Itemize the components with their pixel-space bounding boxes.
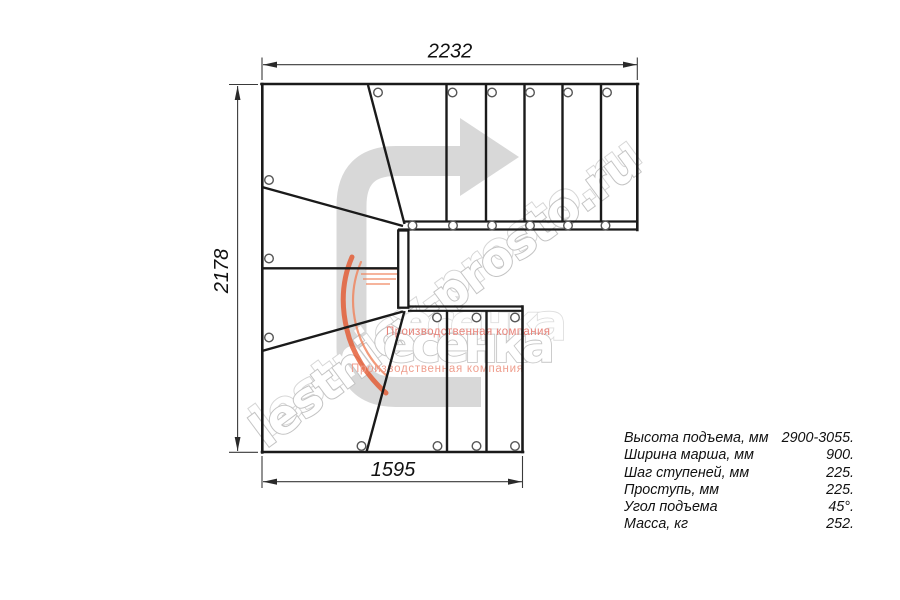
spec-label: Ширина марша, мм [624,447,754,464]
spec-row-flight-width: Ширина марша, мм 900. [624,447,854,464]
spec-label: Проступь, мм [624,482,719,499]
spec-value: 900. [826,447,854,464]
spec-label: Угол подъема [624,499,718,516]
spec-row-mass: Масса, кг 252. [624,516,854,533]
spec-value: 252. [826,516,854,533]
dimension-top-label: 2232 [427,41,473,63]
spec-label: Масса, кг [624,516,688,533]
dimension-left-label: 2178 [211,249,233,295]
spec-row-angle: Угол подъема 45°. [624,499,854,516]
spec-label: Высота подъема, мм [624,430,769,447]
spec-row-height: Высота подъема, мм 2900-3055. [624,430,854,447]
spec-value: 45°. [828,499,854,516]
dimension-bottom-label: 1595 [371,459,416,481]
spec-value: 225. [826,465,854,482]
spec-row-tread: Проступь, мм 225. [624,482,854,499]
spec-row-step-pitch: Шаг ступеней, мм 225. [624,465,854,482]
spec-value: 225. [826,482,854,499]
newel-post [398,231,408,308]
tagline-text-upper: Производственная компания [386,326,550,338]
spec-label: Шаг ступеней, мм [624,465,749,482]
spec-value: 2900-3055. [782,430,854,447]
staircase-drawing-canvas: lestnicy-prosto.ru lestnicy-prosto.ru ес… [0,0,900,600]
spec-table: Высота подъема, мм 2900-3055. Ширина мар… [624,430,854,534]
tagline-text-lower: Производственная компания [351,363,523,375]
direction-arrow-head [460,118,519,196]
